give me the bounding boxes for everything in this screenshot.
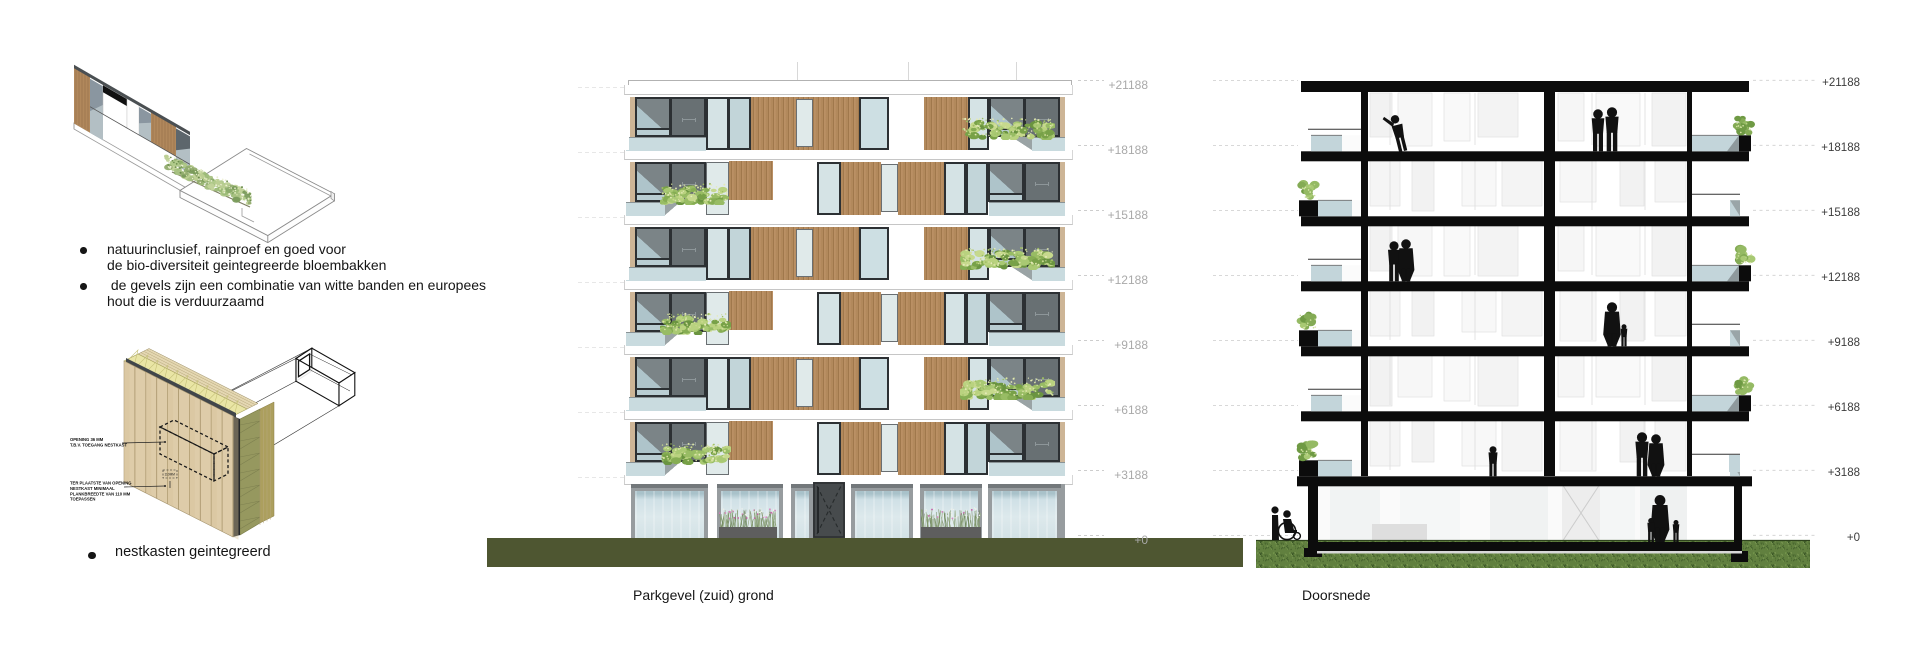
svg-text:+6188: +6188 [1828, 402, 1860, 414]
svg-text:OPENING 36 MM: OPENING 36 MM [70, 437, 104, 442]
svg-text:+18188: +18188 [1821, 142, 1860, 154]
svg-text:T.B.V. TOEGANG NESTKAST: T.B.V. TOEGANG NESTKAST [70, 443, 127, 448]
svg-text:+12188: +12188 [1821, 272, 1860, 284]
svg-text:TOEPASSEN: TOEPASSEN [70, 497, 95, 502]
svg-text:+21188: +21188 [1822, 77, 1860, 89]
svg-text:+9188: +9188 [1828, 337, 1860, 349]
svg-text:+3188: +3188 [1828, 467, 1860, 479]
svg-text:TER PLAATSTE VAN OPENING: TER PLAATSTE VAN OPENING [70, 481, 132, 486]
svg-text:PLANKBREEDTE VAN 110 MM: PLANKBREEDTE VAN 110 MM [70, 491, 131, 496]
svg-text:110MM: 110MM [165, 473, 176, 477]
svg-text:+0: +0 [1847, 532, 1860, 544]
svg-text:NESTKAST MINIMAAL: NESTKAST MINIMAAL [70, 486, 115, 491]
svg-text:+15188: +15188 [1821, 207, 1860, 219]
